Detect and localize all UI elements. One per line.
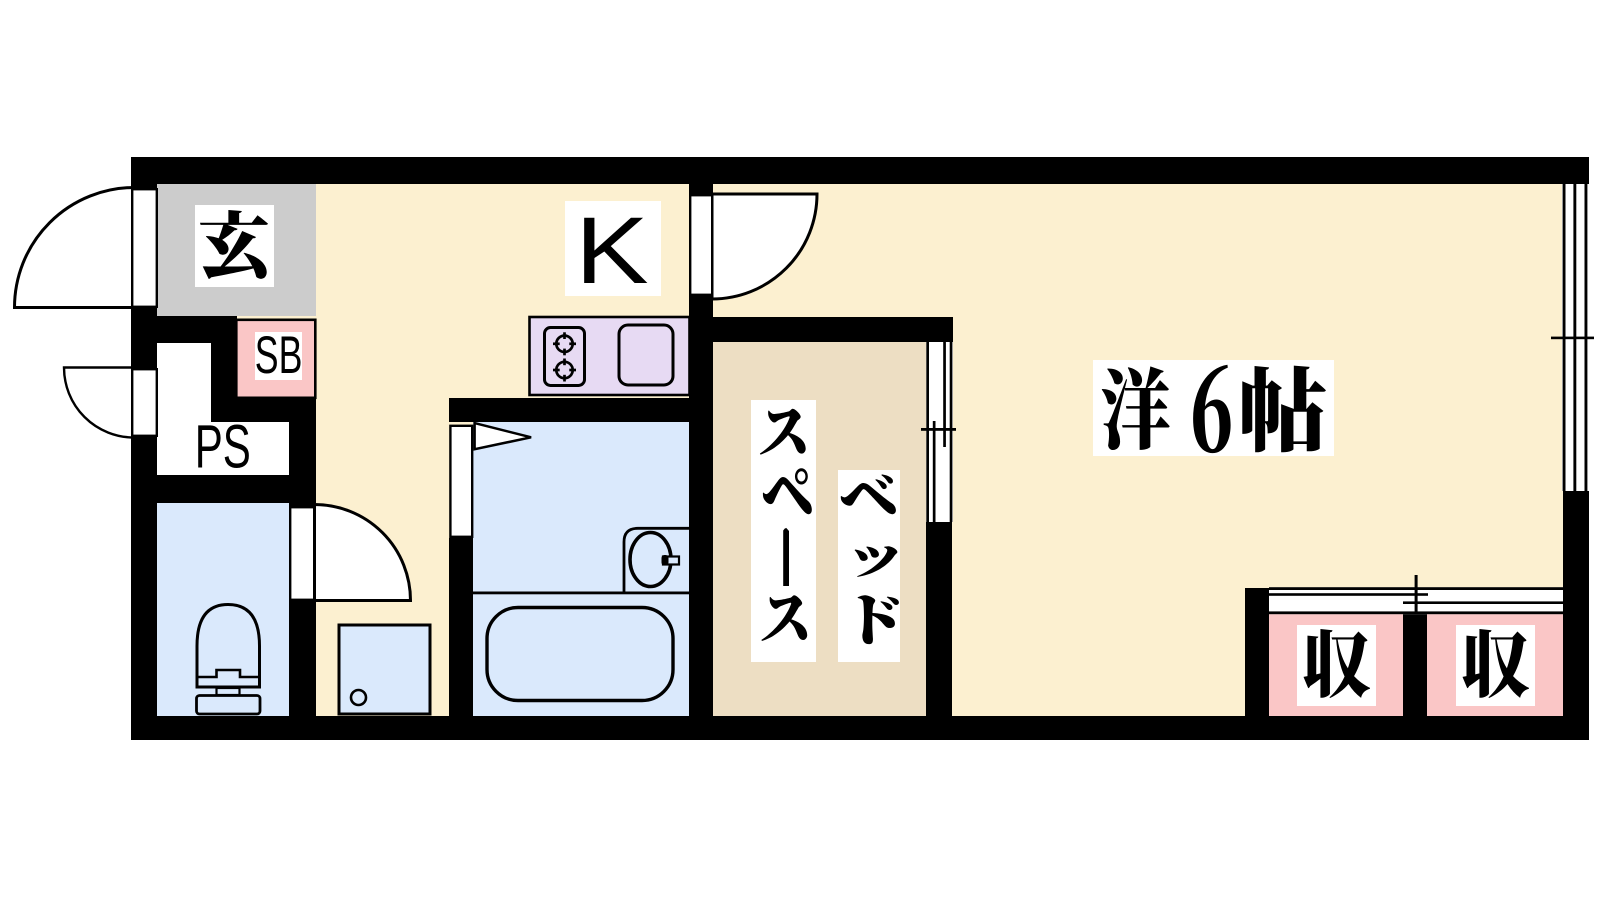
svg-text:K: K [575, 198, 649, 304]
svg-text:PS: PS [195, 413, 251, 481]
svg-text:SB: SB [255, 326, 303, 385]
